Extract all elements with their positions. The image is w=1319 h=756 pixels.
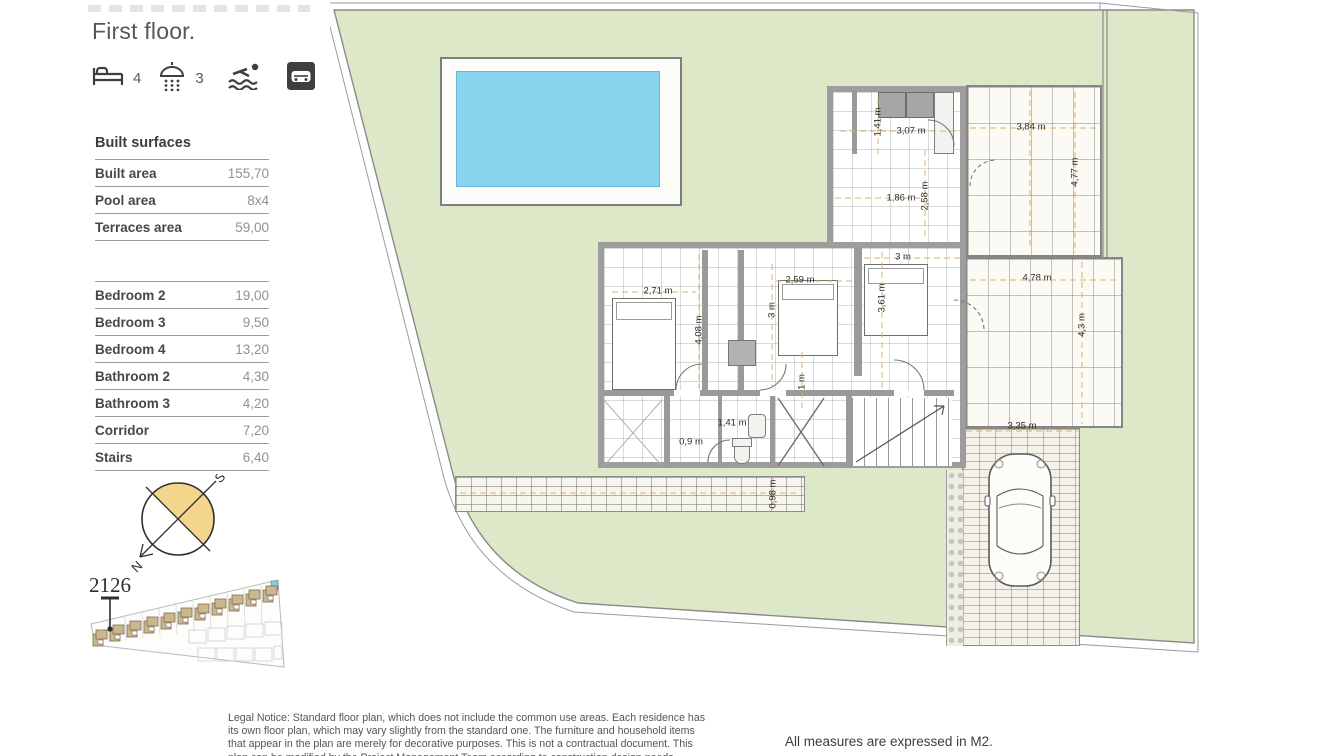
dimension-label: 3,07 m (896, 126, 925, 137)
table-row: Bedroom 4 13,20 (95, 335, 269, 362)
table-row: Bathroom 2 4,30 (95, 362, 269, 389)
row-label: Corridor (95, 423, 149, 438)
dimension-label: 2,59 m (785, 275, 814, 286)
row-label: Stairs (95, 450, 133, 465)
row-label: Bathroom 2 (95, 369, 170, 384)
skylight-cross (778, 398, 824, 466)
table-row: Pool area 8x4 (95, 186, 269, 213)
cropped-text-fragment (88, 5, 310, 12)
dimension-label: 1,86 m (886, 193, 915, 204)
table-row: Bedroom 2 19,00 (95, 281, 269, 308)
row-value: 19,00 (235, 288, 269, 303)
dimension-lines (460, 90, 1120, 510)
row-value: 7,20 (243, 423, 269, 438)
built-surfaces-heading: Built surfaces (95, 135, 191, 151)
row-value: 8x4 (247, 193, 269, 208)
floor-plan: 1,41 m 3,07 m 3,84 m 4,77 m 1,86 m 2,58 … (330, 0, 1219, 668)
row-label: Bedroom 3 (95, 315, 166, 330)
dimension-label: 1,41 m (873, 107, 884, 136)
row-label: Bedroom 4 (95, 342, 166, 357)
site-plan: 2126 (86, 572, 300, 674)
row-value: 13,20 (235, 342, 269, 357)
table-row: Built area 155,70 (95, 159, 269, 186)
bathroom-count: 3 (195, 70, 203, 87)
dimension-label: 3 m (895, 252, 911, 263)
dimension-label: 4,08 m (694, 315, 705, 344)
row-value: 4,30 (243, 369, 269, 384)
compass: N S (130, 474, 226, 574)
dimension-label: 0,98 m (768, 479, 779, 508)
dimension-label: 0,9 m (679, 437, 703, 448)
table-row: Bedroom 3 9,50 (95, 308, 269, 335)
table-row: Terraces area 59,00 (95, 213, 269, 240)
garage-icon (286, 61, 316, 96)
unit-number: 2126 (89, 573, 131, 597)
page-title: First floor. (92, 18, 195, 45)
dimension-label: 3,35 m (1007, 421, 1036, 432)
stairs-arrow (856, 406, 944, 462)
door-arcs (676, 120, 996, 462)
row-label: Bedroom 2 (95, 288, 166, 303)
row-label: Built area (95, 166, 157, 181)
table-row: Corridor 7,20 (95, 416, 269, 443)
row-value: 59,00 (235, 220, 269, 235)
dimension-label: 3 m (767, 302, 778, 318)
pool-swimmer-icon (227, 62, 263, 95)
feature-icons-row: 4 3 (92, 60, 292, 96)
row-value: 4,20 (243, 396, 269, 411)
dimension-label: 4,3 m (1077, 313, 1088, 337)
row-label: Terraces area (95, 220, 182, 235)
shower-icon (158, 61, 186, 96)
row-value: 155,70 (228, 166, 269, 181)
dimension-label: 4,78 m (1022, 273, 1051, 284)
bedroom-count: 4 (133, 70, 141, 87)
measures-note: All measures are expressed in M2. (785, 734, 993, 749)
car (985, 454, 1055, 586)
bed-icon (92, 64, 124, 93)
row-value: 6,40 (243, 450, 269, 465)
room-surfaces-table: Bedroom 2 19,00 Bedroom 3 9,50 Bedroom 4… (95, 281, 269, 471)
dimension-label: 2,58 m (920, 181, 931, 210)
dimension-label: 1,41 m (717, 418, 746, 429)
table-row: Stairs 6,40 (95, 443, 269, 470)
row-label: Bathroom 3 (95, 396, 170, 411)
dimension-label: 1 m (797, 374, 808, 390)
shower-cross (604, 400, 662, 466)
row-value: 9,50 (243, 315, 269, 330)
legal-notice: Legal Notice: Standard floor plan, which… (228, 712, 714, 756)
row-label: Pool area (95, 193, 156, 208)
dimension-label: 4,77 m (1070, 157, 1081, 186)
dimension-label: 2,71 m (643, 286, 672, 297)
dimension-label: 3,84 m (1016, 122, 1045, 133)
dimension-label: 3,61 m (877, 283, 888, 312)
table-row: Bathroom 3 4,20 (95, 389, 269, 416)
built-surfaces-table: Built area 155,70 Pool area 8x4 Terraces… (95, 159, 269, 241)
